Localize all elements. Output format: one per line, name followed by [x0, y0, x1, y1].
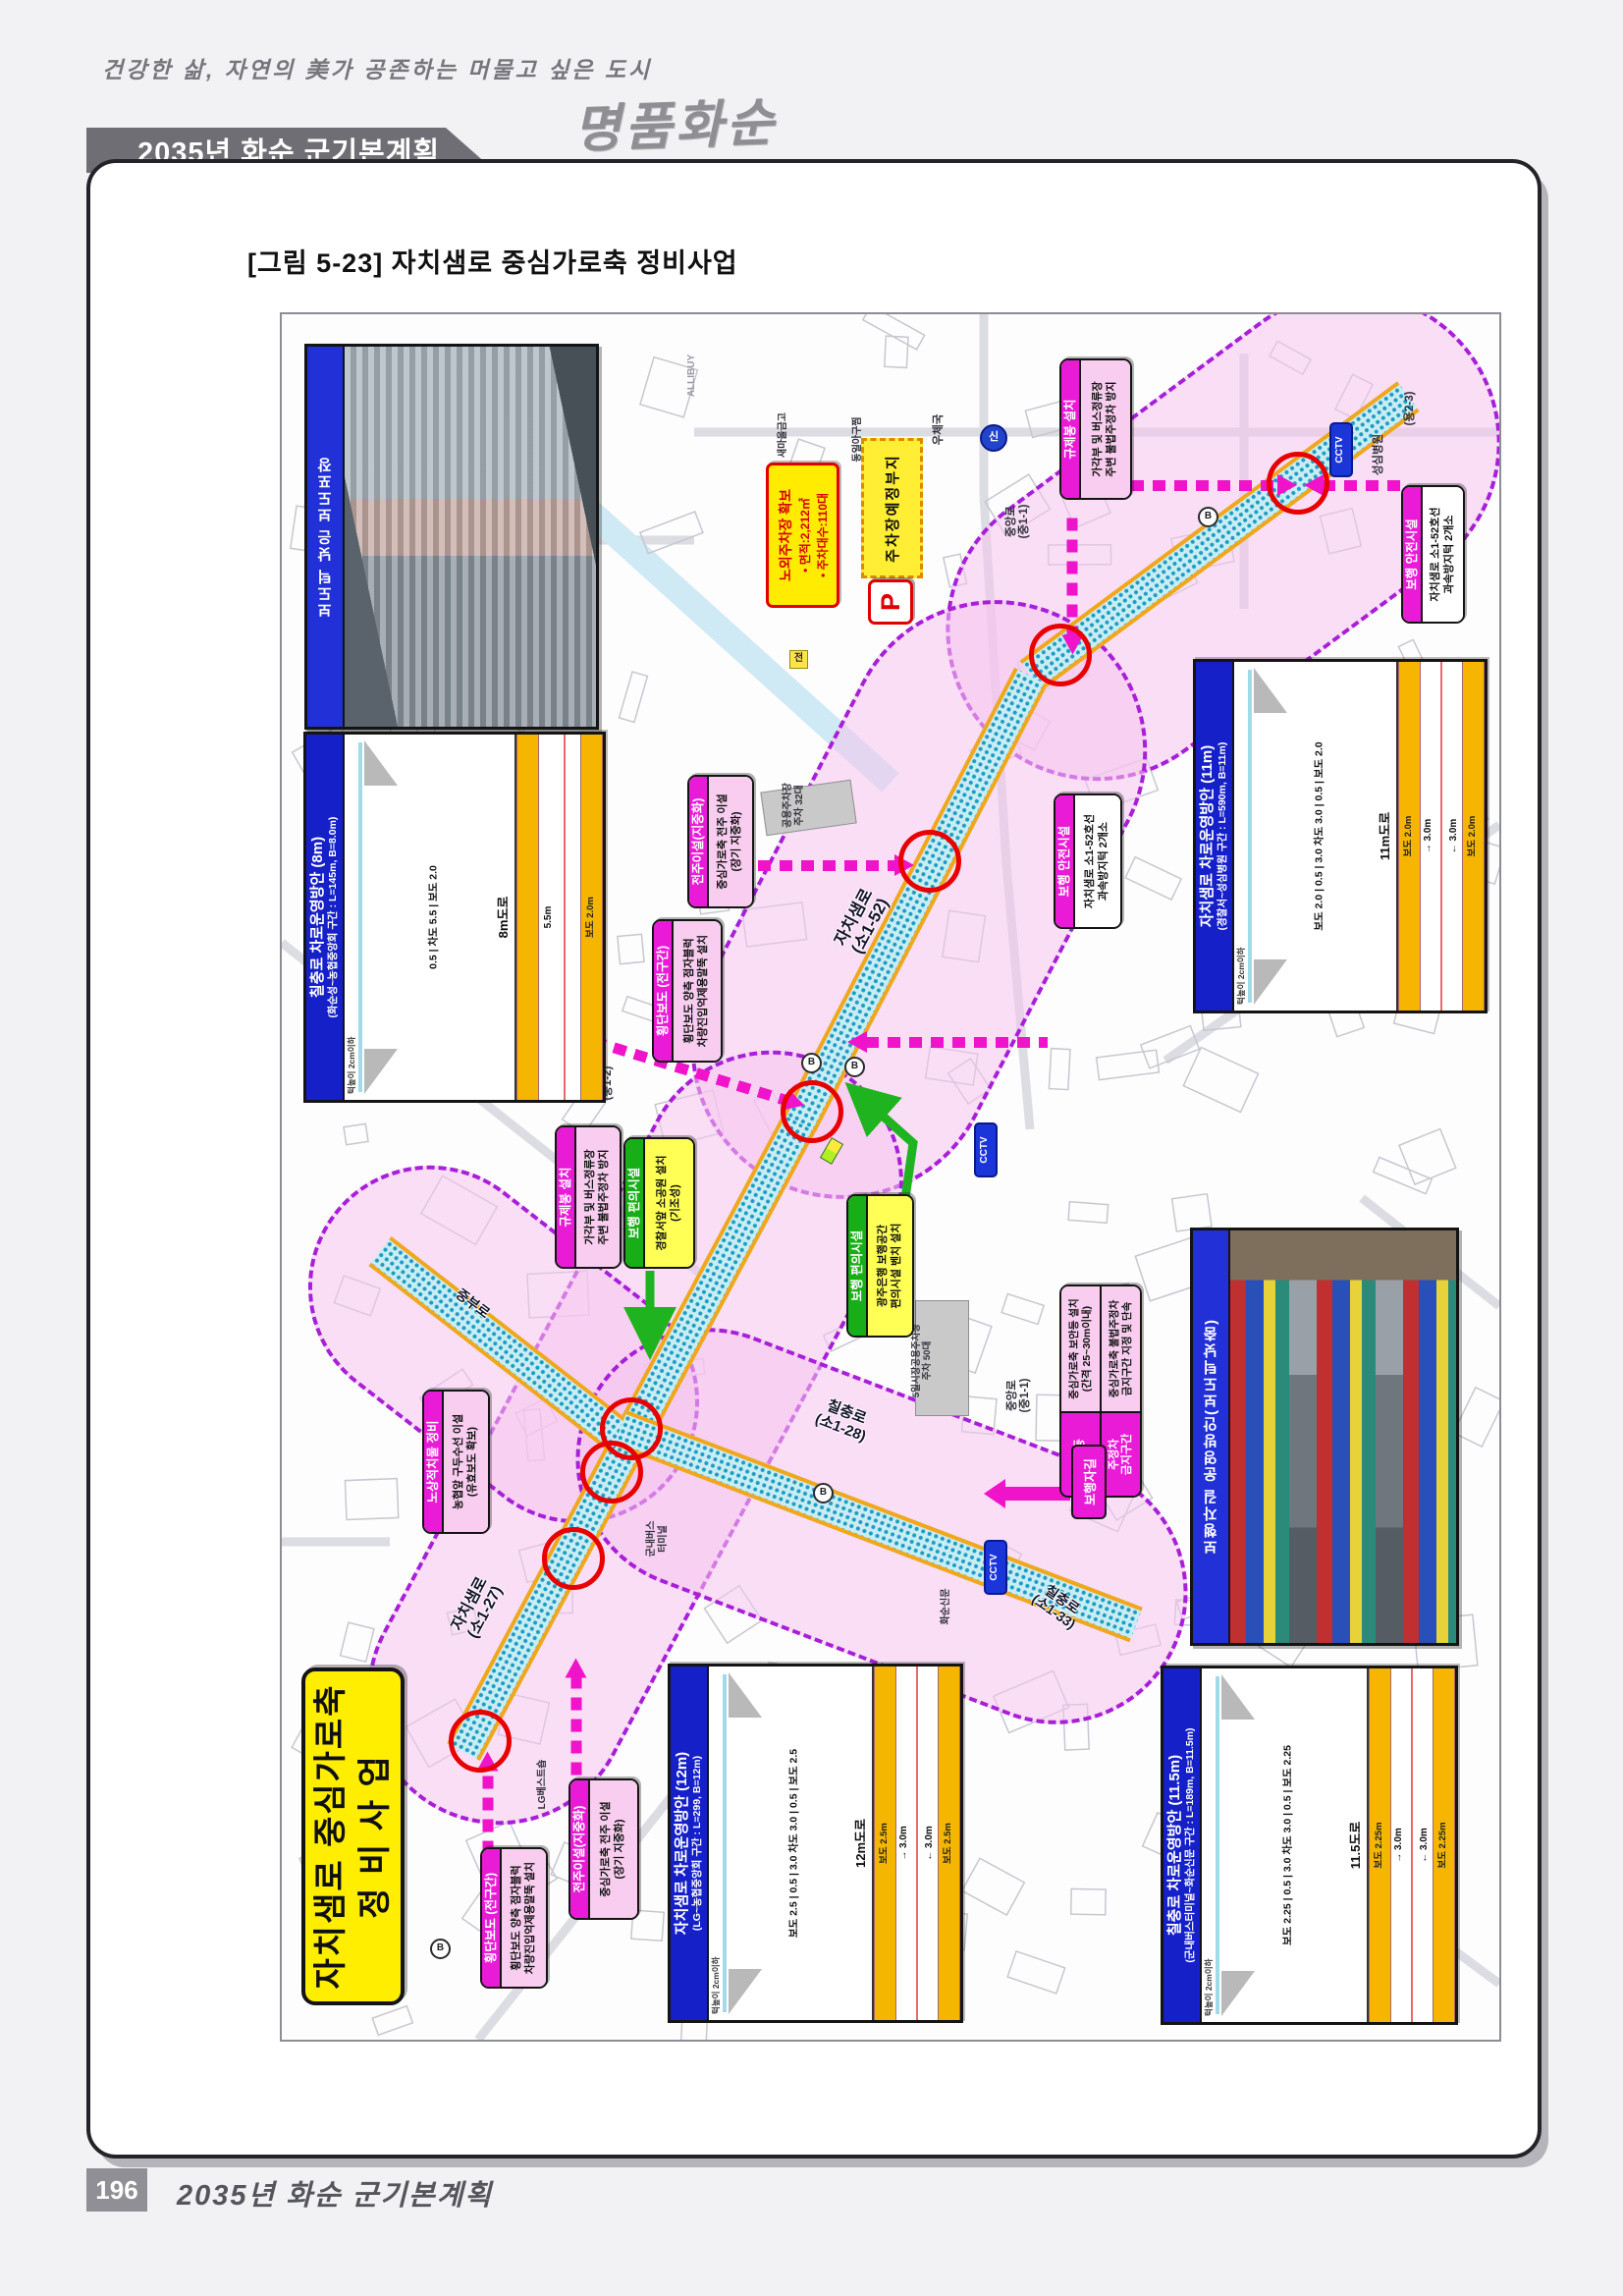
sidewalk-strip	[516, 735, 539, 1100]
photo-low-curb-pavement: 보도턱 낮은 보도포장	[304, 344, 599, 730]
watermark-allibuy: ALLIBUY	[686, 349, 698, 403]
parking-p-symbol: P	[868, 579, 913, 625]
cctv-badge: CCTV	[974, 1122, 998, 1177]
panel-section-diagram: 턱높이 2cm이하 보도 2.25 | 0.5 | 3.0 차도 3.0 | 0…	[1202, 1668, 1367, 2022]
bus-stop-marker: B	[801, 1053, 822, 1073]
photo-label-strip: 보도턱 낮은 보도포장	[307, 347, 345, 727]
callout-ped-convenience-bank: 보행 편의시설 광주은행 보행공간 편의시설 벤치 설치	[846, 1194, 914, 1338]
callout-body: 광주은행 보행공간 편의시설 벤치 설치	[868, 1196, 912, 1336]
callout-body: 중심가로축 보안등 설치 (간격 25~30m이내)	[1061, 1286, 1100, 1411]
callout-body: 가각부 및 버스정류장 주변 불법주정차 방지	[1081, 360, 1130, 498]
callout-pole-relocation-1: 전주이설(지중화) 중심가로축 전주 이설 (장기 지중화)	[687, 775, 754, 908]
callout-regulation-post-2: 규제봉 설치 가각부 및 버스정류장 주변 불법주정차 방지	[555, 1125, 622, 1269]
callout-body: 가각부 및 버스정류장 주변 불법주정차 방지	[576, 1127, 620, 1267]
photo-label: 보도턱 낮은 보도포장	[315, 456, 336, 618]
cctv-badge: CCTV	[984, 1540, 1007, 1595]
project-title-line2: 정 비 사 업	[353, 1754, 397, 1918]
callout-header: 노상적치물 정비	[424, 1392, 444, 1532]
callout-crosswalk-1: 횡단보도 (전구간) 횡단보도 양측 점자블럭 차량진입억제용말뚝 설치	[652, 919, 723, 1063]
section-dimensions: 보도 2.5 | 0.5 | 3.0 차도 3.0 | 0.5 | 보도 2.5	[786, 1667, 801, 2020]
lane-label: → 3.0m	[1394, 1668, 1404, 2022]
callout-header: 규제봉 설치	[1061, 360, 1081, 498]
panel-section-diagram: 턱높이 2cm이하 보도 2.0 | 0.5 | 3.0 차도 3.0 | 0.…	[1234, 662, 1396, 1011]
callout-header: 보행 편의시설	[625, 1139, 645, 1267]
document-page: 건강한 삶, 자연의 美가 공존하는 머물고 싶은 도시 2035년 화순 군기…	[0, 0, 1623, 2296]
intersection-circle	[1267, 452, 1329, 515]
section-dimensions: 보도 2.25 | 0.5 | 3.0 차도 3.0 | 0.5 | 보도 2.…	[1280, 1668, 1295, 2022]
sidewalk-strip: 보도 2.0m	[1462, 662, 1485, 1011]
photo-label-strip: 보행자길 운영방안(보도턱낮춤)	[1193, 1230, 1230, 1643]
callout-street-clearance: 노상적치물 정비 농협앞 구두수선 이설 (유효보도 확보)	[422, 1390, 490, 1534]
bus-stop-marker: B	[813, 1483, 834, 1503]
panel-plan-view: 보도 2.0m → 3.0m ← 3.0m 보도 2.0m	[1396, 662, 1485, 1011]
bus-stop-marker: B	[430, 1939, 451, 1959]
panel-title: 칠충로 차로운영방안 (11.5m)	[1166, 1670, 1184, 2020]
cross-section-panel-8m: 칠충로 차로운영방안 (8m) (화순성~농협중앙회 구간 : L=145m, …	[303, 732, 606, 1103]
section-dimensions: 보도 2.0 | 0.5 | 3.0 차도 3.0 | 0.5 | 보도 2.0	[1311, 662, 1325, 1011]
sidewalk-strip: 보도 2.0m	[580, 735, 603, 1100]
callout-body: 중심가로축 전주 이설 (장기 지중화)	[590, 1780, 637, 1918]
curb-note: 턱높이 2cm이하	[710, 1957, 722, 2014]
hwasun-brand-logo: 명품화순	[572, 81, 779, 161]
road-surface-line	[723, 1674, 727, 2012]
road-surface-line	[1248, 670, 1252, 1003]
center-line	[1440, 662, 1442, 1011]
bus-stop-marker: B	[1198, 507, 1218, 527]
callout-header: 보행 안전시설	[1055, 795, 1075, 927]
callout-regulation-post-1: 규제봉 설치 가각부 및 버스정류장 주변 불법주정차 방지	[1059, 358, 1132, 500]
callout-body: 농협앞 구두수선 이설 (유효보도 확보)	[444, 1392, 488, 1532]
poi-label-post-office: 우체국	[933, 408, 946, 452]
jeon-badge: 전	[789, 650, 808, 669]
road-width-label: 8m도로	[493, 735, 512, 1100]
lane-label: → 3.0m	[1424, 662, 1434, 1011]
sidewalk-strip: 보도 2.0m	[1398, 662, 1421, 1011]
callout-body: 자치샘로 소1-52호선 과속방지턱 2개소	[1423, 487, 1463, 622]
intersection-circle	[781, 1080, 843, 1143]
callout-body: 횡단보도 양측 점자블럭 차량진입억제용말뚝 설치	[502, 1849, 546, 1987]
panel-subtitle: (화순성~농협중앙회 구간 : L=145m, B=8.0m)	[327, 737, 340, 1098]
cross-section-panel-11m: 자치샘로 차로운영방안 (11m) (경찰서~성심병원 구간 : L=590m,…	[1193, 659, 1488, 1013]
photo-ped-path-plan: 보행자길 운영방안(보도턱낮춤)	[1190, 1228, 1459, 1646]
figure-caption: [그림 5-23] 자치샘로 중심가로축 정비사업	[247, 242, 738, 280]
callout-header: 전주이설(지중화)	[570, 1780, 590, 1918]
poi-label-parking50: 5일시장공용주차장 주차 50대	[912, 1300, 951, 1421]
footer-title: 2035년 화순 군기본계획	[177, 2172, 493, 2214]
section-dimensions: 0.5 | 차도 5.5 | 보도 2.0	[425, 735, 440, 1100]
intersection-circle	[580, 1441, 643, 1503]
zone-label-yong: (용2-3)	[1404, 383, 1417, 434]
parking-area: • 면적:2,212㎡	[796, 465, 813, 605]
curb-note: 턱높이 2cm이하	[1235, 948, 1247, 1005]
intersection-circle	[898, 830, 961, 893]
panel-subtitle: (군내버스터미널~화순신문 구간 : L=189m, B=11.5m)	[1184, 1670, 1197, 2020]
street-photo	[345, 347, 596, 727]
road-label-jungang-1b: 중앙로 (중1-1)	[1006, 1365, 1032, 1426]
callout-body: 중심가로축 불법주정차 금지구간 지정 및 단속	[1102, 1286, 1140, 1411]
poi-label-bus-terminal: 군내버스 터미널	[646, 1509, 676, 1568]
lane-label: → 3.0m	[899, 1667, 909, 2020]
lane-label: ← 3.0m	[1449, 662, 1459, 1011]
parking-title: 노외주차장 확보	[776, 465, 795, 605]
curb-note: 턱높이 2cm이하	[1203, 1959, 1215, 2016]
callout-header: 보행 편의시설	[848, 1196, 868, 1336]
callout-offstreet-parking: 노외주차장 확보 • 면적:2,212㎡ • 주차대수:110대	[766, 463, 839, 608]
panel-subtitle: (LG~농협중앙회 구간 : L=299, B=12m)	[691, 1668, 704, 2018]
page-number: 196	[86, 2168, 147, 2212]
callout-header: 보행 안전시설	[1403, 487, 1423, 622]
callout-header: 횡단보도 (전구간)	[482, 1849, 502, 1987]
sidewalk-strip: 보도 2.25m	[1433, 1668, 1455, 2022]
callout-header: 전주이설(지중화)	[689, 777, 709, 906]
callout-ped-safety-1: 보행 안전시설 자치샘로 소1-52호선 과속방지턱 2개소	[1401, 485, 1465, 624]
traffic-signal-badge: 신	[980, 424, 1007, 452]
road-surface-line	[1216, 1676, 1219, 2014]
poi-label-newspaper: 화순신문	[941, 1583, 952, 1630]
intersection-circle	[449, 1710, 512, 1773]
poi-label-saemaul: 새마을금고	[778, 407, 789, 464]
panel-plan-view: 보도 2.25m → 3.0m ← 3.0m 보도 2.25m	[1367, 1668, 1455, 2022]
callout-pole-relocation-2: 전주이설(지중화) 중심가로축 전주 이설 (장기 지중화)	[568, 1778, 639, 1920]
project-title-line1: 자치샘로 중심가로축	[309, 1684, 352, 1990]
street-photo	[1230, 1230, 1456, 1643]
lane-label: 5.5m	[544, 735, 554, 1100]
callout-body: 중심가로축 전주 이설 (장기 지중화)	[709, 777, 752, 906]
sidewalk-strip: 보도 2.5m	[874, 1667, 896, 2020]
callout-header: 횡단보도 (전구간)	[654, 921, 674, 1061]
cctv-badge: CCTV	[1329, 422, 1353, 477]
parking-count: • 주차대수:110대	[814, 465, 831, 605]
poi-label-hospital: 성심병원	[1373, 426, 1385, 483]
panel-title: 칠충로 차로운영방안 (8m)	[309, 737, 327, 1098]
photo-label: 보행자길 운영방안(보도턱낮춤)	[1201, 1318, 1221, 1555]
road-surface-line	[358, 742, 362, 1092]
callout-body: 횡단보도 양측 점자블럭 차량진입억제용말뚝 설치	[674, 921, 721, 1061]
road-width-label: 12m도로	[850, 1667, 869, 2020]
callout-ped-safety-2: 보행 안전시설 자치샘로 소1-52호선 과속방지턱 2개소	[1054, 793, 1122, 929]
center-line	[564, 735, 566, 1100]
curb-note: 턱높이 2cm이하	[346, 1037, 357, 1094]
panel-title: 자치샘로 차로운영방안 (12m)	[674, 1668, 691, 2018]
sidewalk-strip: 보도 2.25m	[1369, 1668, 1391, 2022]
lane-label: ← 3.0m	[925, 1667, 935, 2020]
cross-section-panel-11-5m: 칠충로 차로운영방안 (11.5m) (군내버스터미널~화순신문 구간 : L=…	[1161, 1666, 1458, 2025]
intersection-circle	[1029, 624, 1092, 686]
page-slogan: 건강한 삶, 자연의 美가 공존하는 머물고 싶은 도시	[102, 51, 652, 84]
callout-ped-convenience-police: 보행 편의시설 경찰서앞 소공원 설치 (기조성)	[623, 1137, 695, 1269]
callout-header: 주정차 금지구간	[1102, 1411, 1140, 1496]
panel-section-diagram: 턱높이 2cm이하 0.5 | 차도 5.5 | 보도 2.0 8m도로	[345, 735, 514, 1100]
panel-section-diagram: 턱높이 2cm이하 보도 2.5 | 0.5 | 3.0 차도 3.0 | 0.…	[709, 1667, 872, 2020]
lane-label: ← 3.0m	[1420, 1668, 1430, 2022]
center-line	[916, 1667, 918, 2020]
poi-label-parking32: 공용주차장 주차 32대	[783, 766, 812, 845]
road-label-jungang-1: 중앙로 (중1-1)	[1005, 491, 1031, 552]
callout-header: 규제봉 설치	[557, 1127, 576, 1267]
callout-crosswalk-2: 횡단보도 (전구간) 횡단보도 양측 점자블럭 차량진입억제용말뚝 설치	[480, 1847, 548, 1989]
cross-section-panel-12m: 자치샘로 차로운영방안 (12m) (LG~농협중앙회 구간 : L=299, …	[668, 1664, 963, 2023]
poi-label-lg-shop: LG베스트숍	[537, 1750, 549, 1819]
callout-body: 경찰서앞 소공원 설치 (기조성)	[645, 1139, 693, 1267]
road-width-label: 11m도로	[1375, 662, 1393, 1011]
bus-stop-marker: B	[844, 1057, 865, 1077]
callout-body: 자치샘로 소1-52호선 과속방지턱 2개소	[1075, 795, 1120, 927]
intersection-circle	[542, 1527, 605, 1590]
panel-plan-view: 보도 2.5m → 3.0m ← 3.0m 보도 2.5m	[872, 1667, 960, 2020]
callout-ped-path-tag: 보행자길	[1071, 1445, 1107, 1519]
center-line	[1411, 1668, 1413, 2022]
road-width-label: 11.5도로	[1345, 1668, 1364, 2022]
callout-parking-site: 주차장예정부지	[861, 438, 923, 578]
improvement-project-map: 자치샘로 (소1-52) 자치샘로 (소1-27) 칠충로 (소1-28) 칠충…	[280, 312, 1501, 2042]
panel-subtitle: (경찰서~성심병원 구간 : L=590m, B=11m)	[1217, 664, 1229, 1009]
panel-title: 자치샘로 차로운영방안 (11m)	[1199, 664, 1217, 1009]
project-title-box: 자치샘로 중심가로축 정 비 사 업	[301, 1667, 405, 2005]
sidewalk-strip: 보도 2.5m	[938, 1667, 960, 2020]
panel-plan-view: 5.5m 보도 2.0m	[514, 735, 603, 1100]
